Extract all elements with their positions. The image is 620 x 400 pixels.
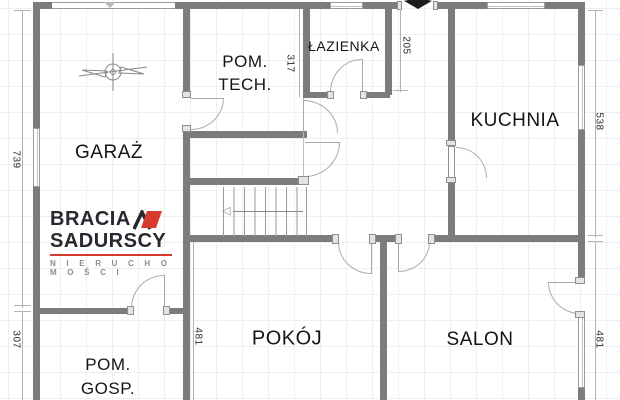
- wall: [363, 2, 400, 9]
- room-label-kuchnia: KUCHNIA: [470, 110, 559, 132]
- wall: [448, 2, 455, 145]
- wall: [437, 2, 487, 9]
- wall: [578, 130, 585, 282]
- dimension-tick: [588, 235, 603, 236]
- wall: [188, 178, 308, 185]
- wall: [380, 242, 387, 400]
- door-swing: [131, 275, 164, 308]
- room-label-pom-tech: POM. TECH.: [218, 50, 272, 96]
- wall-post: [395, 234, 402, 244]
- wall-post: [298, 176, 309, 185]
- wall: [578, 2, 585, 65]
- wall-post: [428, 234, 435, 244]
- wall-post: [182, 91, 191, 98]
- dimension-tick: [588, 10, 603, 11]
- dimension-label-317: 317: [285, 47, 296, 81]
- room-label-lazienka: ŁAZIENKA: [308, 38, 380, 54]
- logo-divider: [50, 254, 172, 256]
- room-label-pom-gosp: POM. GOSP.: [81, 353, 135, 400]
- window: [330, 2, 363, 9]
- dimension-label-481-left: 481: [193, 320, 204, 354]
- wall: [33, 2, 40, 128]
- wall: [33, 187, 40, 400]
- dimension-label-307: 307: [11, 323, 22, 357]
- wall: [183, 127, 190, 400]
- door-panel: [448, 146, 455, 179]
- dimension-label-538: 538: [594, 105, 605, 139]
- door-swing: [456, 147, 487, 178]
- entrance-arrow-icon: [404, 0, 432, 9]
- room-label-garaz: GARAŻ: [75, 142, 143, 164]
- dimension-line: [22, 311, 23, 400]
- wall-post: [575, 311, 585, 318]
- wall-post: [127, 306, 134, 315]
- window: [487, 2, 545, 9]
- room-label-pokoj: POKÓJ: [252, 328, 322, 351]
- wall: [430, 235, 578, 242]
- door-swing: [303, 100, 338, 133]
- wall-post: [182, 125, 191, 132]
- logo-brand-line1: BRACIA: [50, 209, 180, 230]
- door-swing: [398, 242, 430, 272]
- logo-mark-icon: [133, 210, 163, 230]
- wall: [38, 308, 130, 314]
- garage-door-marker-icon: [104, 2, 116, 8]
- logo-text-bracia: BRACIA: [50, 209, 131, 230]
- ceiling-fan-icon: [78, 52, 148, 92]
- stairs-direction-line: [233, 211, 303, 212]
- door-swing: [548, 282, 580, 314]
- dimension-line: [595, 241, 596, 400]
- wall: [578, 388, 585, 400]
- wall-post: [163, 306, 170, 315]
- wall-post: [433, 1, 438, 10]
- wall: [183, 2, 190, 97]
- dimension-label-205: 205: [401, 29, 412, 63]
- wall: [183, 131, 307, 138]
- wall: [168, 308, 187, 314]
- wall: [303, 92, 330, 98]
- window: [33, 128, 40, 187]
- dimension-tick: [393, 90, 408, 91]
- dimension-tick: [14, 10, 31, 11]
- dimension-line: [22, 10, 23, 308]
- door-leaf: [164, 275, 165, 308]
- floor-plan: ◁ GARAŻ POM. TECH. ŁAZIENKA KUCHNIA POKÓ…: [0, 0, 620, 400]
- agency-logo: BRACIA SADURSCY N I E R U C H O M O Ś C …: [50, 209, 180, 277]
- window: [578, 315, 585, 388]
- dimension-label-481-right: 481: [594, 323, 605, 357]
- wall: [373, 235, 397, 242]
- dimension-tick: [14, 305, 31, 306]
- dimension-line: [299, 9, 300, 97]
- staircase: [223, 187, 307, 237]
- wall-post: [575, 277, 585, 284]
- wall-post: [446, 177, 456, 183]
- wall-post: [446, 140, 456, 146]
- wall: [385, 2, 392, 95]
- wall: [363, 92, 390, 98]
- door-swing: [191, 98, 224, 130]
- stairs-direction-arrow-icon: ◁: [222, 204, 230, 217]
- wall-post: [327, 91, 334, 99]
- logo-tagline: N I E R U C H O M O Ś C I: [50, 259, 180, 277]
- wall-post: [360, 91, 367, 99]
- wall-post: [332, 234, 339, 244]
- room-label-salon: SALON: [447, 329, 514, 351]
- door-swing: [338, 242, 371, 274]
- door-leaf: [371, 242, 372, 274]
- logo-brand-line2: SADURSCY: [50, 230, 180, 252]
- door-leaf: [362, 59, 363, 92]
- window: [578, 65, 585, 130]
- door-swing: [305, 142, 340, 177]
- wall: [448, 180, 455, 242]
- door-swing: [330, 59, 362, 92]
- dimension-label-739: 739: [11, 143, 22, 177]
- wall-post: [369, 234, 376, 244]
